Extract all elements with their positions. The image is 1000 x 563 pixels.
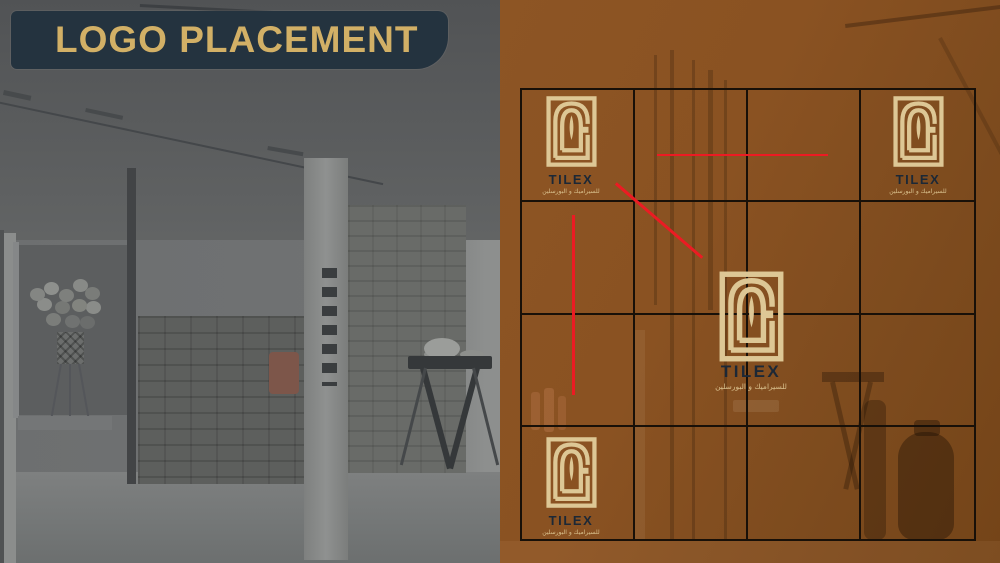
brand-name: TILEX xyxy=(896,173,941,187)
tilex-logo-bottom-left: TILEX للسيراميك و البورسلين xyxy=(539,432,603,536)
tilex-emblem-icon xyxy=(546,91,597,172)
tilex-logo-center: TILEX للسيراميك و البورسلين xyxy=(711,271,791,391)
title-banner: LOGO PLACEMENT xyxy=(11,11,448,69)
tilex-emblem-icon xyxy=(546,432,597,513)
logo-placements: TILEX للسيراميك و البورسلين TILEX للسيرا… xyxy=(0,0,1000,563)
page-title: LOGO PLACEMENT xyxy=(55,19,418,61)
brand-tagline-arabic: للسيراميك و البورسلين xyxy=(542,188,599,195)
brand-tagline-arabic: للسيراميك و البورسلين xyxy=(889,188,946,195)
tilex-emblem-icon xyxy=(719,271,784,362)
tilex-logo-top-right: TILEX للسيراميك و البورسلين xyxy=(886,91,950,195)
tilex-emblem-icon xyxy=(893,91,944,172)
brand-tagline-arabic: للسيراميك و البورسلين xyxy=(542,529,599,536)
brand-name: TILEX xyxy=(549,514,594,528)
brand-tagline-arabic: للسيراميك و البورسلين xyxy=(715,382,787,391)
tilex-logo-top-left: TILEX للسيراميك و البورسلين xyxy=(539,91,603,195)
slide: TILEX للسيراميك و البورسلين TILEX للسيرا… xyxy=(0,0,1000,563)
brand-name: TILEX xyxy=(721,363,781,381)
brand-name: TILEX xyxy=(549,173,594,187)
